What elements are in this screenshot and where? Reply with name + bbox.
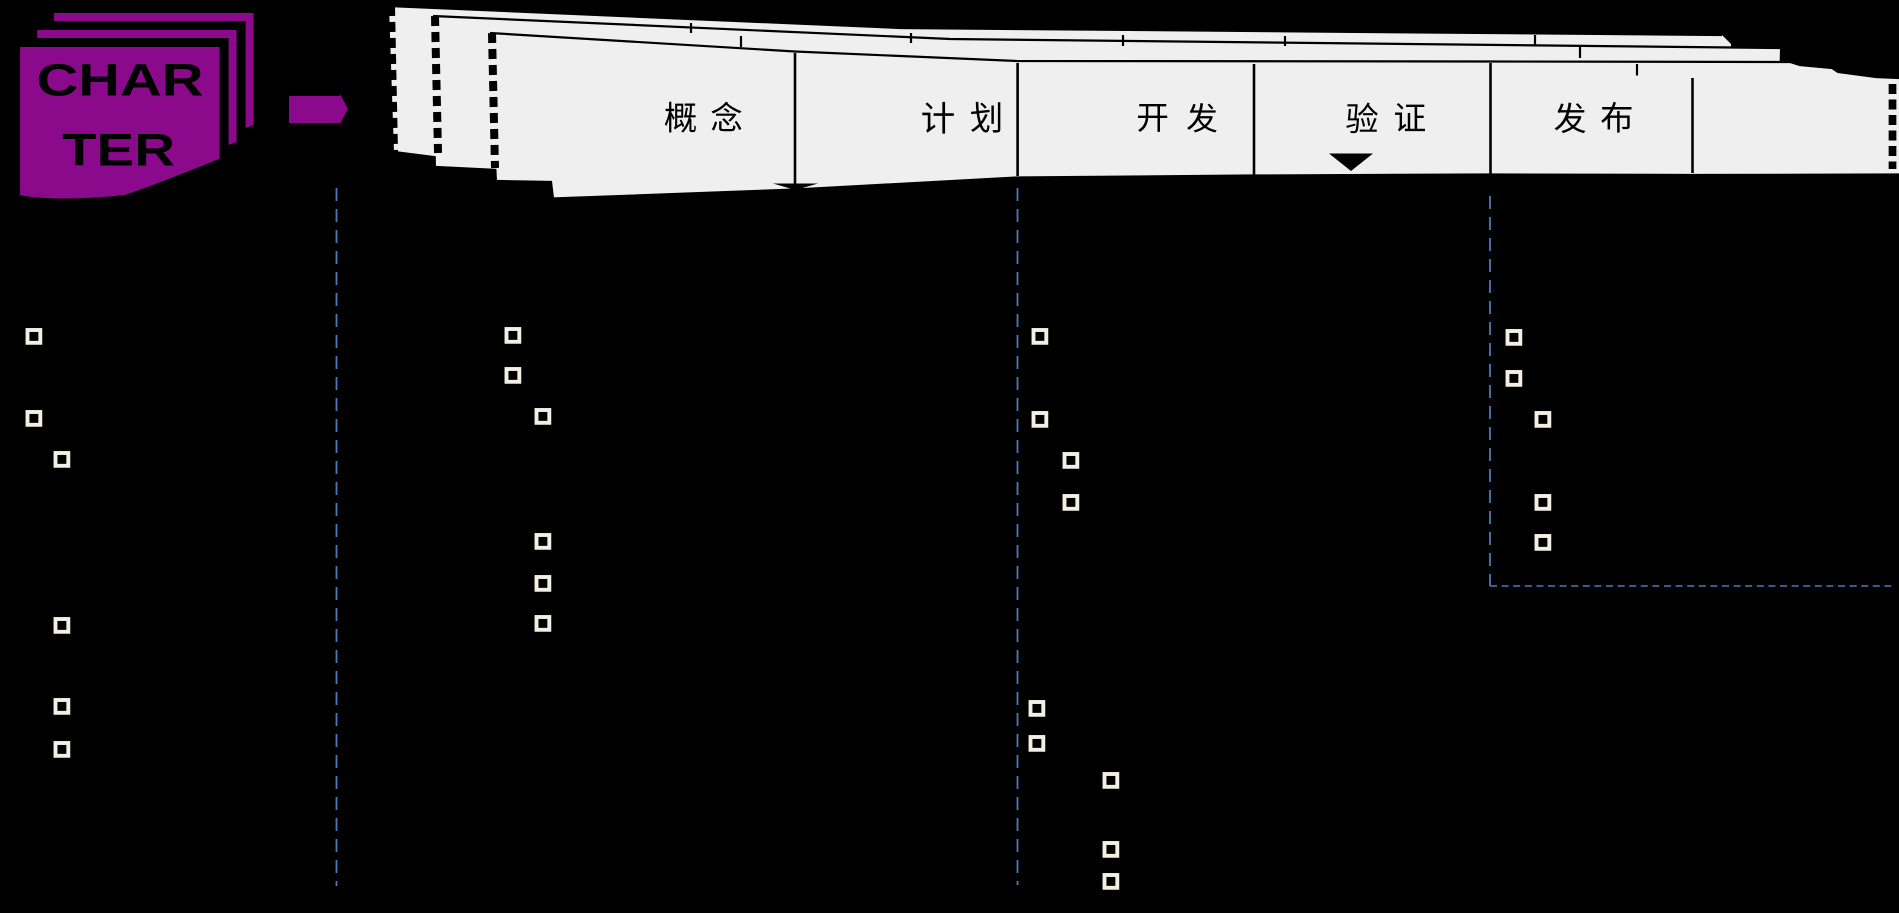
svg-text:TER: TER bbox=[62, 125, 175, 176]
svg-text:CHAR: CHAR bbox=[37, 55, 204, 106]
